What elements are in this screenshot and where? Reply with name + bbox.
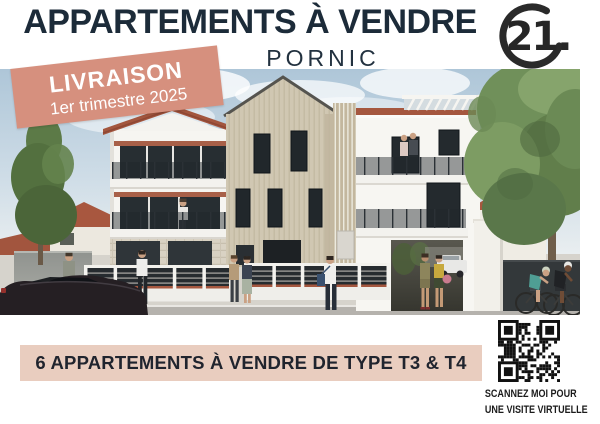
qr-caption-line2: UNE VISITE VIRTUELLE [485, 404, 575, 416]
city-subtitle: PORNIC [258, 45, 388, 72]
utility-cabinet [337, 231, 354, 259]
offer-bar: 6 APPARTEMENTS À VENDRE DE TYPE T3 & T4 [20, 345, 482, 381]
qr-code [498, 320, 560, 382]
qr-caption-line1: SCANNEZ MOI POUR [485, 388, 575, 400]
century21-logo: 21. [482, 0, 582, 70]
central-tower [224, 77, 342, 267]
logo-number: 21. [506, 14, 571, 60]
entrance-door [263, 240, 301, 266]
real-estate-poster: APPARTEMENTS À VENDRE PORNIC 21. [0, 0, 600, 424]
page-title: APPARTEMENTS À VENDRE [0, 3, 500, 42]
